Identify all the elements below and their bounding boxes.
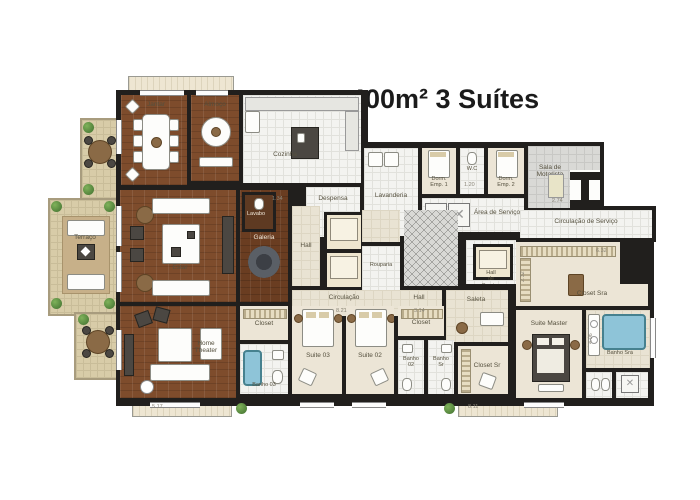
dimension-label: 1.20 xyxy=(464,182,475,188)
bidet xyxy=(601,378,610,391)
room-shower-sra: ✕ xyxy=(616,372,648,398)
window xyxy=(524,402,564,408)
room-label: Suite Master xyxy=(524,320,574,327)
room-closet-03: Closet xyxy=(240,306,288,340)
room-label: Galeria xyxy=(244,234,284,241)
plant xyxy=(83,184,94,195)
bench xyxy=(538,384,564,392)
tv-cabinet xyxy=(124,334,134,376)
room-suite-master: Suite Master xyxy=(516,310,582,398)
toilet xyxy=(591,378,600,391)
plant xyxy=(236,403,247,414)
centerpiece xyxy=(211,127,221,137)
sink xyxy=(402,344,413,353)
room-closet-sr: Closet Sr xyxy=(458,346,508,394)
toilet xyxy=(467,152,477,165)
room-suite-03: Suite 03 xyxy=(292,306,342,394)
toilet xyxy=(272,370,283,384)
plant xyxy=(51,201,62,212)
side-table xyxy=(125,167,141,183)
nightstand xyxy=(570,340,580,350)
elevator-2 xyxy=(324,250,364,290)
nightstand xyxy=(387,314,394,323)
nightstand xyxy=(294,314,303,323)
window xyxy=(116,252,122,292)
terrace-chair xyxy=(84,159,93,168)
floor-lamp xyxy=(140,380,154,394)
room-label: Circulação xyxy=(316,294,372,301)
pillow xyxy=(430,152,446,157)
room-dorm-emp-2: Dorm. Emp. 2 xyxy=(488,148,524,194)
room-label: Almoço xyxy=(198,101,232,108)
window xyxy=(300,402,334,408)
bed xyxy=(355,309,387,347)
sofa xyxy=(152,198,210,214)
room-label: Despensa xyxy=(311,195,355,202)
room-hall-central: Hall xyxy=(292,206,320,286)
dimension-label: 1.34 xyxy=(272,196,283,202)
fridge xyxy=(245,111,260,133)
room-label: Lavanderia xyxy=(366,192,416,199)
master-bed xyxy=(532,334,570,382)
dimension-label: 6.32 xyxy=(596,248,607,254)
terrace-chair xyxy=(105,349,114,358)
room-label: Lavabo xyxy=(242,211,270,217)
bed xyxy=(302,309,334,347)
pillow xyxy=(498,152,514,157)
terrace-chair xyxy=(107,136,116,145)
room-label: Closet Sr xyxy=(468,362,506,369)
terrace-sofa xyxy=(67,274,105,290)
room-hall-servico: Hall de Serviço xyxy=(466,240,516,284)
chair xyxy=(169,135,179,147)
nightstand xyxy=(347,314,356,323)
elevator-1 xyxy=(324,212,364,252)
dimension-label: 8.21 xyxy=(336,308,347,314)
room-label: Circulação de Serviço xyxy=(536,218,636,225)
room-label: Banho 02 xyxy=(398,356,424,369)
room-cozinha: Cozinha xyxy=(243,95,361,183)
toilet xyxy=(441,378,451,391)
nightstand xyxy=(334,314,342,323)
room-estar: Estar xyxy=(120,190,236,302)
room-label: Suite 03 xyxy=(300,352,336,359)
bench xyxy=(548,174,564,198)
page-title: 400m² 3 Suítes xyxy=(350,84,539,115)
room-dorm-emp-1: Dorm. Emp. 1 xyxy=(422,148,456,194)
room-home-theater: Home Theater xyxy=(120,306,236,398)
terrace-chair xyxy=(82,326,91,335)
jacuzzi-tub xyxy=(602,314,646,350)
terrace-chair xyxy=(107,159,116,168)
sofa xyxy=(152,280,210,296)
terrace-chair xyxy=(84,136,93,145)
room-banho-sr: Banho Sr xyxy=(428,340,454,394)
dimension-label: 4.06 xyxy=(588,333,594,344)
plant xyxy=(83,122,94,133)
room-label: Suite 02 xyxy=(352,352,388,359)
desk xyxy=(480,312,504,326)
kitchen-counter xyxy=(345,111,359,151)
tv-cabinet xyxy=(222,216,234,274)
shower: ✕ xyxy=(621,375,639,393)
terrace-chair xyxy=(82,349,91,358)
room-label: Jantar xyxy=(139,101,173,108)
room-label: Saleta xyxy=(456,296,496,303)
room-lavabo: Lavabo xyxy=(242,192,276,232)
chaise xyxy=(200,328,222,360)
wardrobe xyxy=(243,309,287,319)
window xyxy=(116,206,122,246)
room-core-corridor xyxy=(362,210,400,242)
dimension-label: 8.11 xyxy=(468,404,478,410)
room-label: Closet xyxy=(246,320,282,327)
room-label: Rouparia xyxy=(362,262,400,268)
room-label: Hall xyxy=(294,242,318,249)
centerpiece xyxy=(151,137,162,148)
room-suite-02: Suite 02 xyxy=(346,306,394,394)
coffee-table xyxy=(162,224,200,264)
chair xyxy=(133,151,143,163)
armchair xyxy=(370,367,390,386)
room-label: Banho Sr xyxy=(428,356,454,369)
plant xyxy=(444,403,455,414)
chair xyxy=(169,151,179,163)
sofa xyxy=(150,364,210,381)
room-saleta: Saleta xyxy=(446,290,508,342)
window xyxy=(116,330,122,370)
toilet xyxy=(402,378,412,391)
room-circulacao-servico: Circulação de Serviço xyxy=(520,210,652,238)
side-table xyxy=(125,99,141,115)
terrace-chair xyxy=(105,326,114,335)
sink xyxy=(590,320,598,328)
armchair xyxy=(130,248,144,262)
plant xyxy=(104,298,115,309)
terrace-table xyxy=(77,244,95,260)
nightstand xyxy=(522,340,532,350)
center-table xyxy=(158,328,192,362)
round-rug xyxy=(248,246,280,278)
window xyxy=(116,120,122,154)
room-label: Closet xyxy=(403,319,439,326)
window xyxy=(352,402,386,408)
washer xyxy=(384,152,399,167)
room-banho-02: Banho 02 xyxy=(398,340,424,394)
dimension-label: 2.74 xyxy=(552,198,563,204)
room-label: W.C xyxy=(460,166,484,172)
service-elevator xyxy=(473,244,513,280)
toilet xyxy=(254,198,264,210)
room-jantar: Jantar xyxy=(121,95,187,185)
armchair xyxy=(134,310,153,328)
window xyxy=(196,90,228,96)
room-rouparia: Rouparia xyxy=(362,246,400,290)
room-label: Banho Sra xyxy=(598,350,642,356)
room-label: Hall xyxy=(404,294,434,301)
room-banho-03: Banho 03 xyxy=(240,344,288,394)
room-label: Estar xyxy=(160,264,200,271)
plant xyxy=(78,314,89,325)
dimension-label: 5.17 xyxy=(152,404,163,410)
chair xyxy=(456,322,468,334)
chair xyxy=(133,119,143,131)
sink xyxy=(297,133,305,143)
stairwell xyxy=(404,210,458,286)
terrace-sofa xyxy=(67,220,105,236)
room-banho-sra: Banho Sra xyxy=(586,310,650,368)
armchair xyxy=(130,226,144,240)
dimension-label: 2.32 xyxy=(520,271,526,282)
room-sala-motorista: Sala de Motorista xyxy=(528,146,600,208)
dimension-label: 3.14 xyxy=(414,308,425,314)
floor-plan-image: 400m² 3 Suítes Jantar Almoço xyxy=(0,0,700,500)
chair xyxy=(133,135,143,147)
room-label: Área de Serviço xyxy=(470,209,524,216)
window xyxy=(140,90,184,96)
island-drawer xyxy=(568,274,584,296)
wardrobe xyxy=(461,349,471,393)
sink xyxy=(441,344,452,353)
sideboard xyxy=(199,157,233,167)
room-closet-sra-ext xyxy=(618,284,648,306)
stair-structure xyxy=(570,170,600,208)
plant xyxy=(104,201,115,212)
kitchen-island xyxy=(291,127,319,159)
armchair xyxy=(152,306,170,323)
armchair xyxy=(478,372,497,390)
plant xyxy=(51,298,62,309)
sink xyxy=(272,350,284,360)
chair xyxy=(169,119,179,131)
washer xyxy=(368,152,383,167)
armchair xyxy=(298,367,318,386)
room-wc-sra xyxy=(586,372,612,398)
room-almoco: Almoço xyxy=(191,95,239,181)
kitchen-counter xyxy=(245,97,359,111)
window xyxy=(650,318,656,358)
bathtub xyxy=(243,350,262,386)
